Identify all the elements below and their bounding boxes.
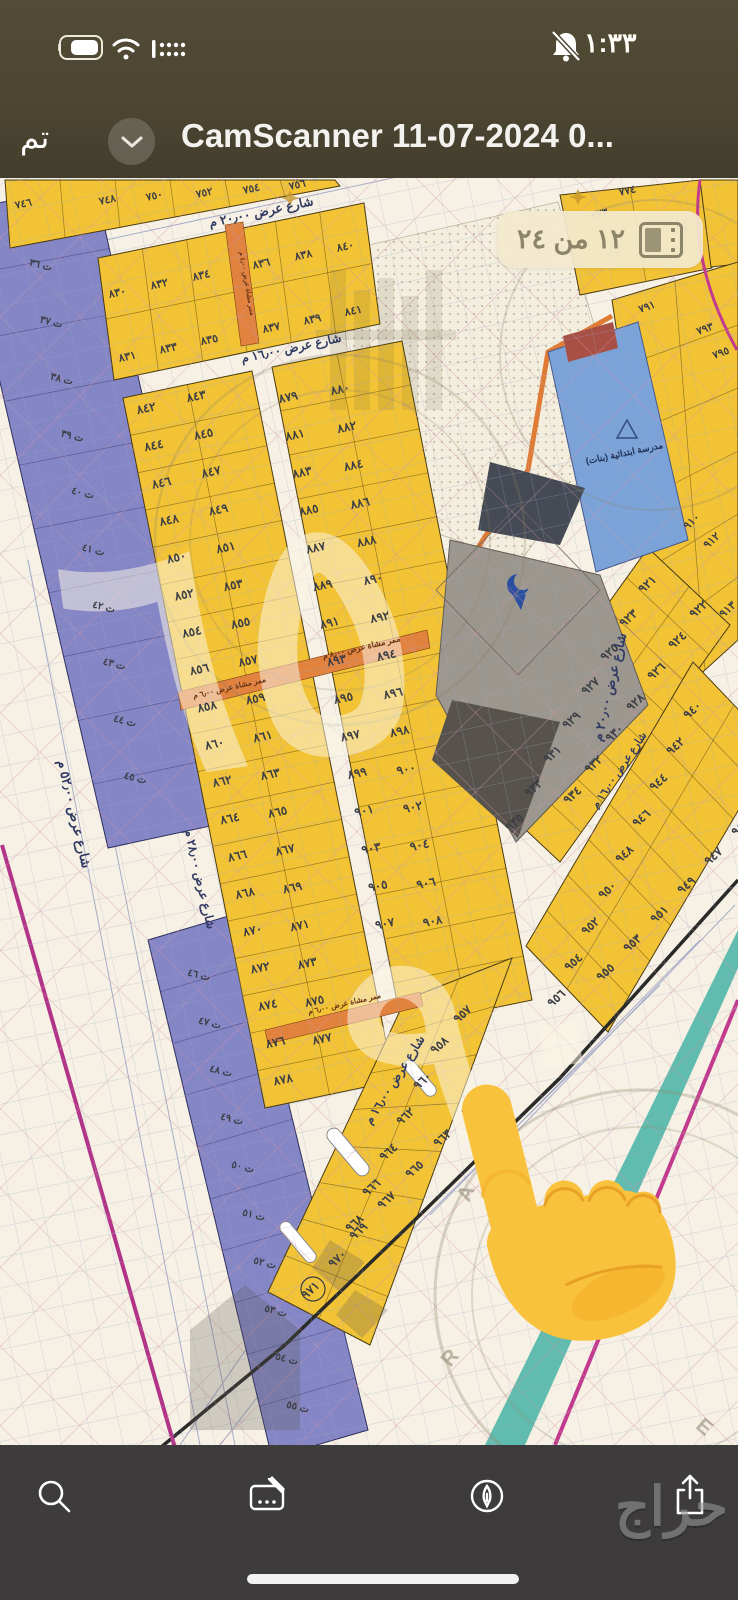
chevron-down-icon: [121, 135, 143, 149]
cadastral-map-svg: ٦٥٩٠٨٣٠٨٣٢٨٣٤٨٣٦٨٣٨٨٤٠٨٣١٨٣٣٨٣٥٨٣٧٨٣٩٨٤١…: [0, 178, 738, 1445]
status-left-icons: [58, 32, 218, 66]
magnifier-icon: [40, 1482, 69, 1511]
iphone-screen: ٦٥٩٠٨٣٠٨٣٢٨٣٤٨٣٦٨٣٨٨٤٠٨٣١٨٣٣٨٣٥٨٣٧٨٣٩٨٤١…: [0, 0, 738, 1600]
markup-button[interactable]: [239, 1468, 295, 1524]
bell-slash-icon: [550, 30, 582, 64]
pen-circle-icon: [472, 1481, 502, 1511]
annotate-button[interactable]: [459, 1468, 515, 1524]
wifi-icon: [114, 40, 138, 59]
home-indicator[interactable]: [247, 1574, 519, 1584]
cellular-dots-icon: [152, 40, 185, 58]
battery-icon: [58, 36, 102, 59]
pages-icon: [639, 222, 683, 258]
document-title: CamScanner 11-07-2024 0...: [181, 117, 733, 155]
haraj-watermark: حراج: [518, 1475, 728, 1538]
markup-icon: [251, 1476, 285, 1509]
scanned-map-page[interactable]: ٦٥٩٠٨٣٠٨٣٢٨٣٤٨٣٦٨٣٨٨٤٠٨٣١٨٣٣٨٣٥٨٣٧٨٣٩٨٤١…: [0, 178, 738, 1445]
page-counter-text: ١٢ من ٢٤: [517, 224, 625, 255]
collapse-button[interactable]: [108, 118, 155, 165]
page-counter-badge[interactable]: ١٢ من ٢٤: [497, 211, 703, 268]
top-bar: ١:٣٣ تم CamScanner 11-07-2024 0...: [0, 0, 738, 178]
bottom-toolbar: حراج: [0, 1445, 738, 1600]
done-button[interactable]: تم: [20, 120, 49, 156]
status-time: ١:٣٣: [584, 28, 704, 59]
search-button[interactable]: [26, 1468, 82, 1524]
